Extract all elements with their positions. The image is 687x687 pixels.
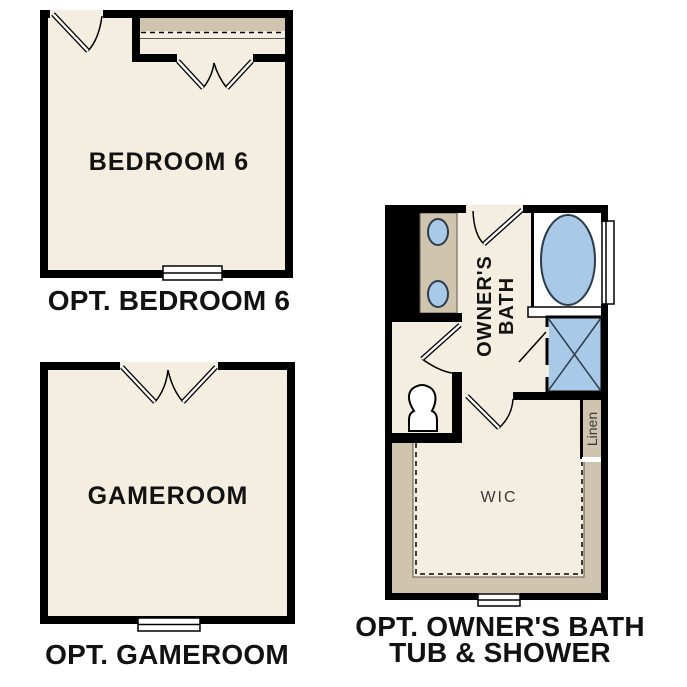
wic-room-label: WIC [469,489,529,507]
bath-window [602,221,614,304]
toilet-fixture [409,385,437,431]
gameroom-room-label: GAMEROOM [68,484,268,509]
bedroom6-window [163,266,222,280]
vanity-counter [420,213,457,313]
owners-bath-label-line1: OWNER'S [474,241,496,371]
gameroom-caption: OPT. GAMEROOM [32,642,302,668]
bedroom6-floor [40,10,293,278]
wall-chase [392,213,420,322]
bedroom6-plan [40,10,293,280]
bedroom6-closet-shelf [140,18,285,31]
wic-window [478,594,520,606]
sink-bowl [428,281,448,307]
owners-bath-caption-line2: TUB & SHOWER [340,640,660,666]
floor-plan-drawing [0,0,687,687]
bathtub-basin [541,215,595,305]
bath-wic-wall [513,392,608,400]
owners-bath-caption: OPT. OWNER'S BATH TUB & SHOWER [340,614,660,666]
owners-bath-room-label: OWNER'S BATH [474,241,520,371]
floor-plan-canvas: BEDROOM 6 OPT. BEDROOM 6 GAMEROOM OPT. G… [0,0,687,687]
sink-bowl [428,219,448,245]
owners-bath-label-line2: BATH [496,241,518,371]
bedroom6-caption: OPT. BEDROOM 6 [34,288,304,314]
bathtub [528,213,602,317]
bedroom6-room-label: BEDROOM 6 [69,150,269,175]
linen-closet-label: Linen [584,404,600,454]
gameroom-window [138,618,200,631]
